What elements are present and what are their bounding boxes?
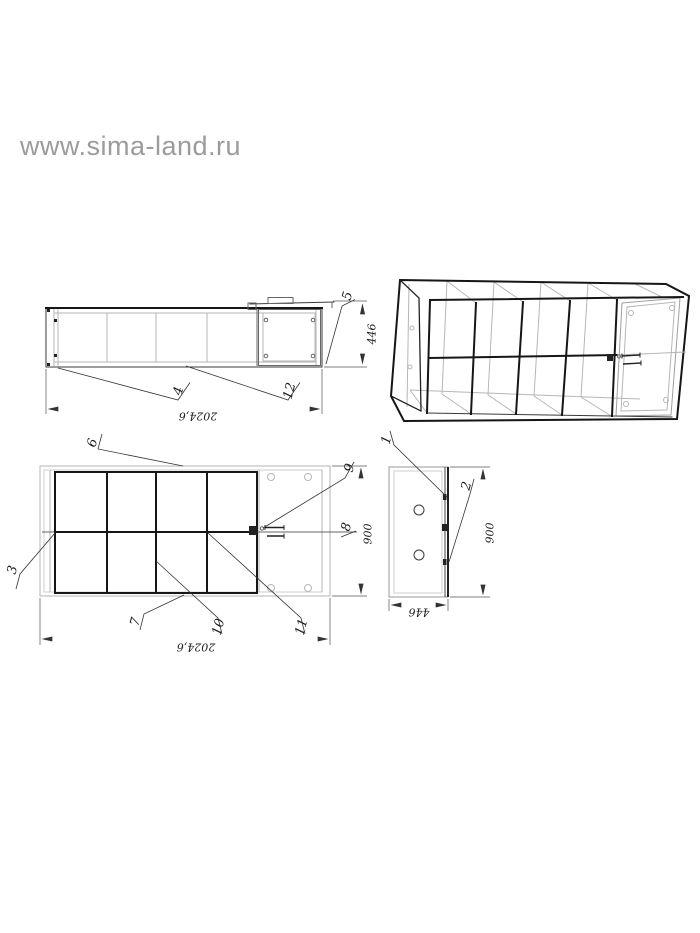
end-view xyxy=(389,431,490,611)
leader-3 xyxy=(16,533,55,589)
side-view xyxy=(46,298,367,415)
end-outline xyxy=(389,467,448,597)
end-latch xyxy=(442,524,447,531)
iso-view xyxy=(391,280,689,421)
dim-plan-length: 2024,6 xyxy=(177,641,216,654)
plan-view xyxy=(16,434,367,645)
leader-9 xyxy=(263,462,354,528)
side-view-outline xyxy=(46,308,322,367)
leader-2 xyxy=(449,479,474,562)
leader-6 xyxy=(98,434,183,466)
end-hole-upper xyxy=(414,505,424,515)
leader-7 xyxy=(140,595,184,630)
dim-end-width: 446 xyxy=(409,606,430,619)
dim-end-height: 900 xyxy=(484,523,497,544)
drawing-page: www.sima-land.ru xyxy=(0,0,700,933)
dim-plan-width: 900 xyxy=(362,524,375,545)
side-door-section xyxy=(259,310,321,366)
dim-side-height: 446 xyxy=(366,324,379,345)
dim-side-length: 2024,6 xyxy=(179,410,218,423)
leader-1 xyxy=(390,431,447,497)
side-dividers xyxy=(107,313,207,362)
leader-5 xyxy=(326,300,355,365)
leader-4 xyxy=(58,368,190,400)
end-hole-lower xyxy=(414,550,424,560)
